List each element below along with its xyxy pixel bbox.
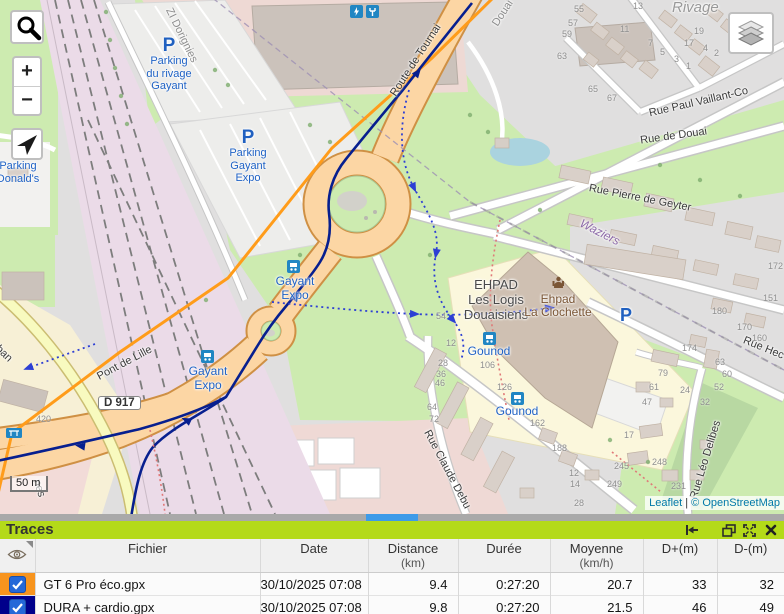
zoom-out-button[interactable]: − (14, 87, 40, 115)
layers-button[interactable] (728, 12, 774, 54)
leaflet-link[interactable]: Leaflet (649, 497, 682, 509)
checkmark-icon (10, 577, 25, 592)
trace-visible-checkbox[interactable] (9, 599, 26, 614)
trace-date: 30/10/2025 07:08 (260, 573, 368, 596)
traces-table: Fichier Date Distance(km) Durée Moyenne(… (0, 539, 784, 614)
bus-stop-icon (201, 350, 214, 363)
open-window-button[interactable] (721, 523, 736, 537)
trace-date: 30/10/2025 07:08 (260, 596, 368, 614)
trace-duration: 0:27:20 (458, 596, 550, 614)
column-distance[interactable]: Distance(km) (368, 539, 458, 573)
trace-elevation-loss: 49 (717, 596, 784, 614)
column-dplus[interactable]: D+(m) (643, 539, 717, 573)
collapse-left-button[interactable] (684, 523, 699, 537)
collapse-left-icon (685, 524, 699, 536)
osm-link[interactable]: © OpenStreetMap (691, 497, 780, 509)
attribution: Leaflet | © OpenStreetMap (645, 496, 784, 510)
search-icon (13, 13, 43, 43)
bus-stop-icon (287, 260, 300, 273)
road-badge-d917: D 917 (98, 396, 141, 410)
trace-elevation-gain: 46 (643, 596, 717, 614)
traces-panel: Traces (0, 521, 784, 614)
trace-visible-checkbox[interactable] (9, 576, 26, 593)
map-view[interactable]: ZI Dorignies P Parking du rivage Gayant … (0, 0, 784, 514)
trace-elevation-loss: 32 (717, 573, 784, 596)
traces-panel-header: Traces (0, 521, 784, 539)
trace-average-speed: 21.5 (550, 596, 643, 614)
column-date[interactable]: Date (260, 539, 368, 573)
zoom-control: + − (12, 56, 42, 116)
panel-title: Traces (0, 521, 54, 539)
trace-color-cell (0, 596, 35, 614)
column-duration[interactable]: Durée (458, 539, 550, 573)
checkmark-icon (10, 600, 25, 614)
expand-button[interactable] (742, 523, 757, 537)
zoom-in-button[interactable]: + (14, 58, 40, 87)
expand-icon (743, 524, 756, 537)
trace-average-speed: 20.7 (550, 573, 643, 596)
column-dminus[interactable]: D-(m) (717, 539, 784, 573)
popup-window-icon (722, 524, 736, 537)
panel-resize-divider[interactable] (0, 514, 784, 521)
table-header-row: Fichier Date Distance(km) Durée Moyenne(… (0, 539, 784, 573)
trace-elevation-gain: 33 (643, 573, 717, 596)
search-button[interactable] (10, 10, 44, 44)
resize-handle[interactable] (366, 514, 418, 521)
trace-file-name: DURA + cardio.gpx (35, 596, 260, 614)
scale-bar: 50 m (10, 476, 48, 492)
gpx-viewer-app: ZI Dorignies P Parking du rivage Gayant … (0, 0, 784, 614)
table-row[interactable]: DURA + cardio.gpx 30/10/2025 07:08 9.8 0… (0, 596, 784, 614)
eye-icon (7, 548, 27, 561)
column-average[interactable]: Moyenne(km/h) (550, 539, 643, 573)
bus-stop-icon (511, 392, 524, 405)
locate-button[interactable] (11, 128, 43, 160)
trace-file-name: GT 6 Pro éco.gpx (35, 573, 260, 596)
table-row[interactable]: GT 6 Pro éco.gpx 30/10/2025 07:08 9.4 0:… (0, 573, 784, 596)
amenity-icon (6, 428, 22, 441)
trace-distance: 9.8 (368, 596, 458, 614)
column-file[interactable]: Fichier (35, 539, 260, 573)
trace-color-cell (0, 573, 35, 596)
map-canvas[interactable] (0, 0, 784, 514)
close-panel-button[interactable] (763, 523, 778, 537)
column-visibility[interactable] (0, 539, 35, 573)
locate-arrow-icon (13, 130, 41, 158)
charging-station-icon (350, 5, 363, 18)
layers-icon (730, 16, 772, 54)
trace-duration: 0:27:20 (458, 573, 550, 596)
close-icon (765, 524, 777, 536)
ev-plug-icon (366, 5, 379, 18)
trace-distance: 9.4 (368, 573, 458, 596)
sort-indicator (26, 541, 33, 548)
panel-toolbar (684, 523, 784, 537)
bus-stop-icon (483, 332, 496, 345)
